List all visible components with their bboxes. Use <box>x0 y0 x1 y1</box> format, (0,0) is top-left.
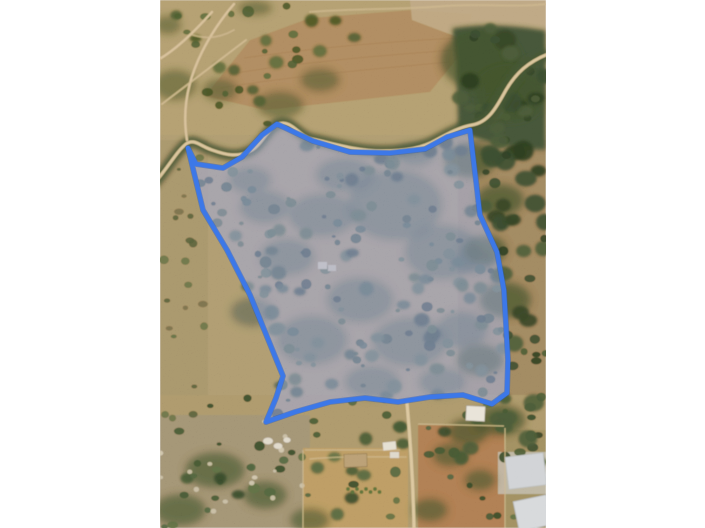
satellite-map-image <box>160 0 546 528</box>
satellite-map[interactable] <box>160 0 546 528</box>
photo-grain <box>160 0 546 528</box>
screenshot-canvas <box>0 0 705 528</box>
